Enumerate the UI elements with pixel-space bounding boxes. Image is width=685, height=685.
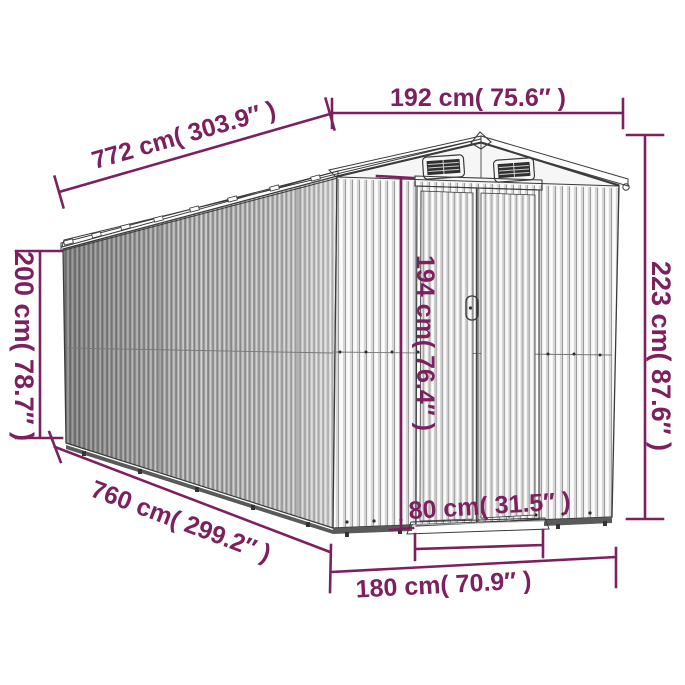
dim-total-height: 223 cm( 87.6″ )	[627, 135, 676, 519]
shed-side-wall	[63, 176, 337, 528]
dim-base-width: 180 cm( 70.9″ )	[330, 545, 616, 604]
diagram-canvas: 192 cm( 75.6″ ) 772 cm( 303.9″ ) 223 cm(…	[0, 0, 685, 685]
dim-wall-height: 200 cm( 78.7″ )	[9, 251, 62, 441]
dim-door-height-label: 194 cm( 76.4″ )	[411, 255, 439, 431]
dim-ridge-length-label: 772 cm( 303.9″ )	[89, 96, 279, 175]
door-right	[477, 188, 539, 523]
dim-total-height-label: 223 cm( 87.6″ )	[646, 261, 676, 451]
shed-illustration	[61, 132, 629, 537]
dim-wall-height-label: 200 cm( 78.7″ )	[9, 251, 39, 441]
dim-front-width: 192 cm( 75.6″ )	[332, 84, 623, 128]
gutter-end-cap	[623, 184, 629, 190]
dim-base-width-label: 180 cm( 70.9″ )	[355, 566, 532, 603]
dim-front-width-label: 192 cm( 75.6″ )	[390, 84, 566, 112]
